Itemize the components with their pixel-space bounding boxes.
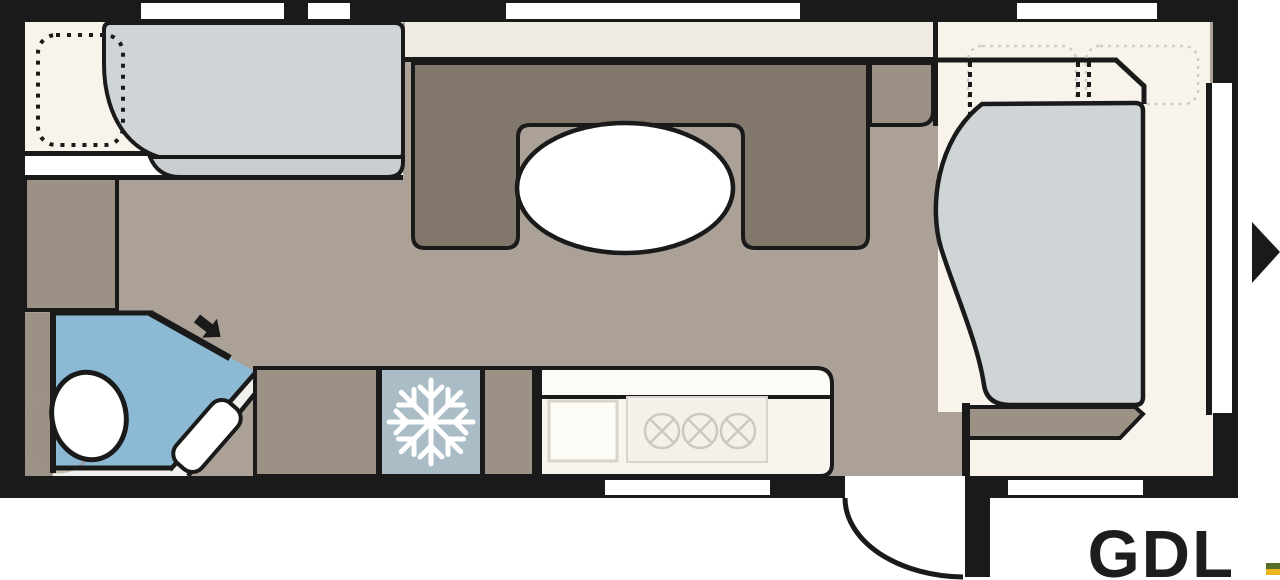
brand-logo-fragment [1266, 563, 1280, 575]
floor-plan-drawing: GDL [0, 0, 1280, 580]
logo-yellow-bar [1266, 569, 1280, 575]
kitchen-cabinet-right [483, 368, 538, 476]
entry-door-leaf [965, 476, 990, 577]
bed-platform-edge-line [25, 151, 153, 156]
window-bottom-2 [1008, 480, 1143, 495]
counter-left-edge [532, 366, 541, 478]
front-bed-mattress [104, 23, 403, 160]
caravan-floor-plan: GDL [0, 0, 1280, 580]
overhead-shelf [405, 22, 938, 60]
rear-bed [936, 22, 1213, 476]
wardrobe [25, 178, 117, 310]
counter-back-strip [540, 368, 832, 397]
window-top-2 [308, 3, 350, 19]
wall-right-top [1213, 0, 1238, 83]
window-top-3 [506, 3, 800, 19]
right-triangle-arrow-icon [1252, 222, 1280, 283]
dinette-table [517, 123, 733, 253]
kitchen [255, 366, 832, 478]
bed-step [968, 407, 1143, 438]
front-bed [25, 22, 403, 180]
door-swing-arc [845, 498, 963, 577]
window-top-4 [1017, 3, 1157, 19]
wall-left [0, 0, 25, 498]
dinette [405, 22, 939, 253]
stove [627, 397, 767, 462]
front-bed-footband [150, 157, 403, 177]
wall-right-bottom [1213, 413, 1238, 498]
window-front-outer-line [1232, 83, 1238, 415]
step-side-wall [962, 403, 970, 476]
window-front-inner-line [1206, 83, 1212, 415]
logo-green-bar [1266, 563, 1280, 569]
kitchen-cabinet-left [255, 368, 378, 476]
side-cabinet [870, 63, 933, 125]
window-bottom-1 [605, 480, 770, 495]
window-top-1 [141, 3, 284, 19]
model-label: GDL [1088, 517, 1235, 580]
snowflake-icon [389, 380, 473, 464]
kitchen-sink [549, 401, 617, 461]
